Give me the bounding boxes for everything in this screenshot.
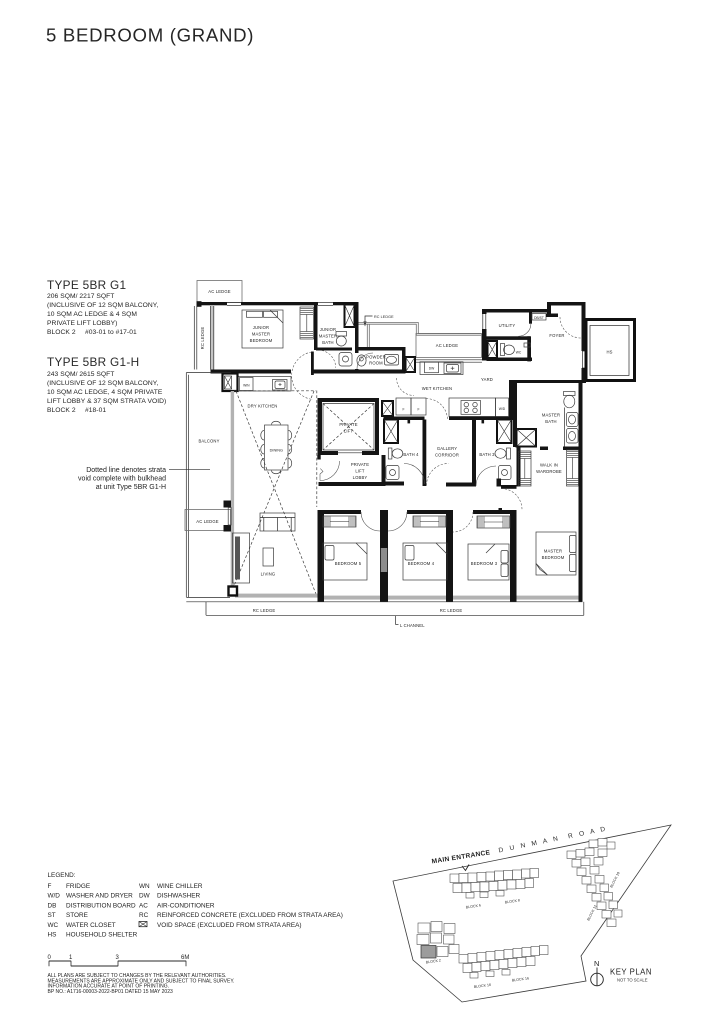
svg-text:BATH: BATH [322, 340, 333, 345]
svg-text:BATH 4: BATH 4 [403, 452, 419, 457]
svg-text:BATH: BATH [545, 419, 556, 424]
svg-text:AC LEDGE: AC LEDGE [196, 519, 218, 524]
svg-text:(INCLUSIVE OF 12 SQM BALCONY,: (INCLUSIVE OF 12 SQM BALCONY, [47, 380, 158, 387]
svg-text:#18-01: #18-01 [85, 407, 106, 414]
svg-text:MASTER: MASTER [252, 332, 270, 337]
svg-text:RC LEDGE: RC LEDGE [374, 315, 394, 319]
svg-text:DISHWASHER: DISHWASHER [157, 893, 200, 900]
svg-text:LIVING: LIVING [261, 572, 276, 577]
svg-text:W/D: W/D [48, 893, 61, 900]
svg-text:at unit Type 5BR G1-H: at unit Type 5BR G1-H [96, 484, 166, 491]
svg-text:JUNIOR: JUNIOR [320, 327, 337, 332]
svg-text:BEDROOM 4: BEDROOM 4 [408, 561, 435, 566]
svg-text:FOYER: FOYER [549, 333, 564, 338]
svg-text:(INCLUSIVE OF 12 SQM BALCONY,: (INCLUSIVE OF 12 SQM BALCONY, [47, 302, 158, 309]
svg-text:F: F [402, 408, 404, 412]
svg-text:GALLERY: GALLERY [437, 446, 457, 451]
svg-text:RC LEDGE: RC LEDGE [253, 608, 276, 613]
svg-text:VOID SPACE (EXCLUDED FROM STRA: VOID SPACE (EXCLUDED FROM STRATA AREA) [157, 922, 302, 929]
svg-text:HOUSEHOLD SHELTER: HOUSEHOLD SHELTER [66, 932, 138, 939]
svg-text:MASTER: MASTER [544, 549, 562, 554]
svg-text:LOBBY: LOBBY [353, 475, 368, 480]
svg-text:RC: RC [139, 912, 149, 919]
svg-text:RC LEDGE: RC LEDGE [200, 327, 205, 350]
svg-text:BLOCK 2: BLOCK 2 [47, 407, 76, 414]
svg-text:243 SQM/ 2615 SQFT: 243 SQM/ 2615 SQFT [47, 371, 114, 378]
svg-text:CORRIDOR: CORRIDOR [435, 453, 459, 458]
svg-text:BEDROOM 3: BEDROOM 3 [471, 561, 498, 566]
svg-text:LIFT: LIFT [355, 469, 365, 474]
svg-text:#03-01 to #17-01: #03-01 to #17-01 [85, 329, 137, 336]
svg-text:5 BEDROOM (GRAND): 5 BEDROOM (GRAND) [46, 25, 254, 46]
svg-text:WINE CHILLER: WINE CHILLER [157, 883, 203, 890]
svg-text:DB/ST: DB/ST [534, 316, 544, 320]
svg-text:Dotted line denotes strata: Dotted line denotes strata [86, 467, 166, 474]
svg-text:PRIVATE LIFT LOBBY): PRIVATE LIFT LOBBY) [47, 320, 117, 327]
svg-text:HS: HS [48, 932, 57, 939]
svg-text:WN: WN [139, 883, 150, 890]
svg-text:10 SQM AC LEDGE, 4 SQM PRIVATE: 10 SQM AC LEDGE, 4 SQM PRIVATE [47, 389, 163, 396]
svg-text:void complete with bulkhead: void complete with bulkhead [78, 476, 166, 483]
svg-text:NOT TO SCALE: NOT TO SCALE [617, 978, 648, 983]
svg-text:DISTRIBUTION BOARD: DISTRIBUTION BOARD [66, 902, 136, 909]
svg-text:WALK IN: WALK IN [540, 463, 558, 468]
svg-text:WC: WC [516, 351, 522, 355]
svg-text:BEDROOM 5: BEDROOM 5 [335, 561, 362, 566]
svg-text:ST: ST [48, 912, 56, 919]
svg-text:WC: WC [48, 922, 59, 929]
svg-text:POWDER: POWDER [366, 355, 386, 360]
svg-text:10 SQM AC LEDGE & 4 SQM: 10 SQM AC LEDGE & 4 SQM [47, 311, 137, 318]
svg-text:PRIVATE: PRIVATE [339, 422, 357, 427]
svg-text:YARD: YARD [481, 377, 493, 382]
svg-text:WASHER AND DRYER: WASHER AND DRYER [66, 893, 133, 900]
svg-text:WATER CLOSET: WATER CLOSET [66, 922, 116, 929]
svg-text:MASTER: MASTER [319, 334, 337, 339]
svg-text:UTILITY: UTILITY [499, 323, 516, 328]
svg-text:AC LEDGE: AC LEDGE [208, 289, 230, 294]
svg-text:BEDROOM: BEDROOM [542, 555, 565, 560]
svg-text:N: N [594, 959, 599, 968]
svg-text:BP NO.: A1716-00003-2022-BP01: BP NO.: A1716-00003-2022-BP01 DATED 15 M… [48, 989, 173, 995]
svg-text:MASTER: MASTER [542, 413, 560, 418]
svg-text:DW: DW [139, 893, 151, 900]
svg-text:RC LEDGE: RC LEDGE [440, 608, 463, 613]
svg-text:FRIDGE: FRIDGE [66, 883, 90, 890]
svg-text:LEGEND:: LEGEND: [48, 872, 76, 879]
svg-text:AC: AC [139, 902, 148, 909]
svg-text:F: F [417, 408, 419, 412]
svg-text:DB: DB [48, 902, 57, 909]
svg-text:HS: HS [606, 350, 612, 355]
svg-text:WIN: WIN [243, 384, 250, 388]
svg-text:TYPE 5BR G1: TYPE 5BR G1 [47, 278, 126, 292]
svg-text:BALCONY: BALCONY [198, 439, 219, 444]
svg-text:STORE: STORE [66, 912, 88, 919]
svg-text:KEY PLAN: KEY PLAN [610, 968, 652, 977]
svg-text:F: F [48, 883, 52, 890]
svg-text:REINFORCED CONCRETE (EXCLUDED: REINFORCED CONCRETE (EXCLUDED FROM STRAT… [157, 912, 343, 919]
svg-text:BLOCK 2: BLOCK 2 [47, 329, 76, 336]
svg-text:WET KITCHEN: WET KITCHEN [422, 386, 452, 391]
svg-text:AIR-CONDITIONER: AIR-CONDITIONER [157, 902, 215, 909]
svg-text:L CHANNEL: L CHANNEL [400, 623, 425, 628]
svg-text:LIFT: LIFT [344, 429, 354, 434]
svg-text:BATH 3: BATH 3 [479, 452, 495, 457]
svg-text:WARDROBE: WARDROBE [536, 469, 562, 474]
svg-text:DRY KITCHEN: DRY KITCHEN [248, 404, 278, 409]
svg-text:AC LEDGE: AC LEDGE [436, 343, 458, 348]
svg-text:JUNIOR: JUNIOR [253, 325, 270, 330]
svg-text:TYPE 5BR G1-H: TYPE 5BR G1-H [47, 355, 139, 369]
svg-text:LIFT LOBBY & 37 SQM STRATA VOI: LIFT LOBBY & 37 SQM STRATA VOID) [47, 398, 166, 405]
svg-text:W/D: W/D [499, 407, 506, 411]
svg-text:206 SQM/ 2217 SQFT: 206 SQM/ 2217 SQFT [47, 293, 114, 300]
svg-text:PRIVATE: PRIVATE [351, 462, 369, 467]
svg-text:DW: DW [429, 367, 435, 371]
svg-text:BEDROOM: BEDROOM [250, 338, 273, 343]
svg-text:DINING: DINING [270, 449, 283, 453]
svg-text:ROOM: ROOM [369, 361, 383, 366]
svg-text:6M: 6M [181, 955, 189, 961]
